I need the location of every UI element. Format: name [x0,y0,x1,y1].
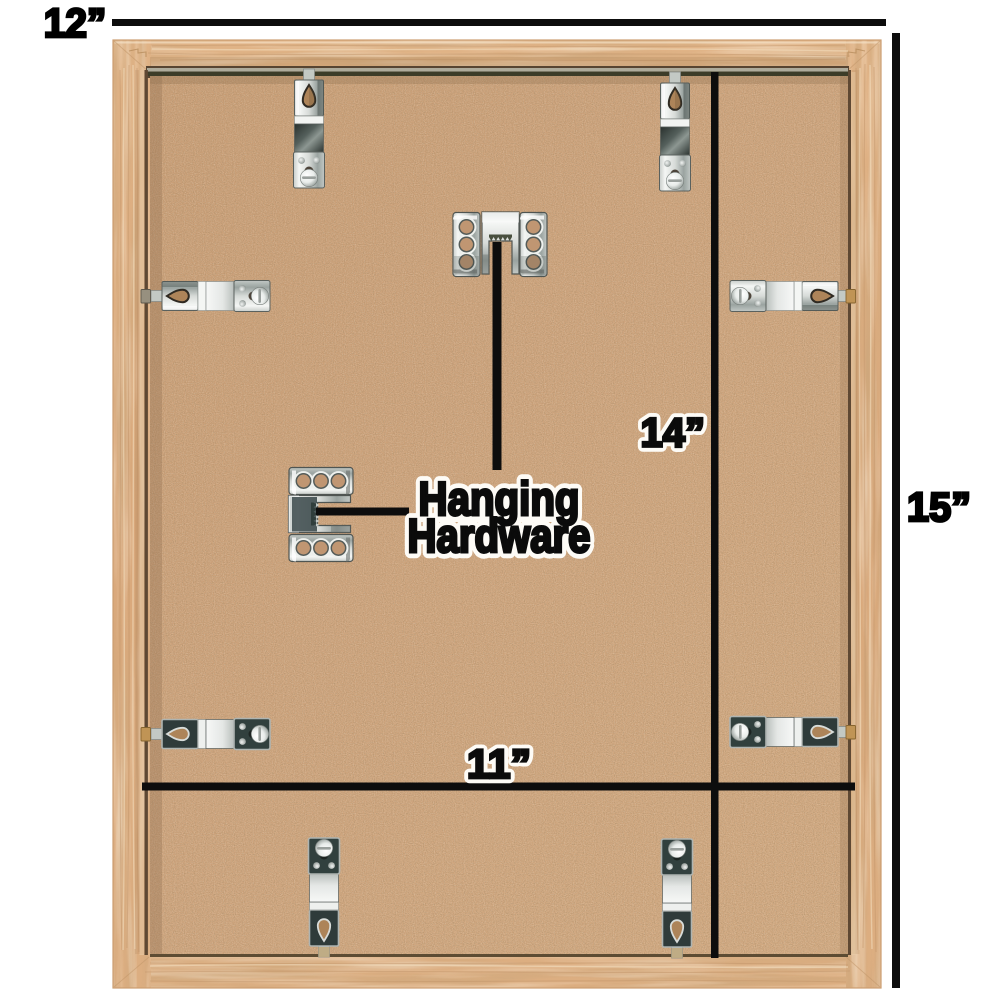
svg-text:15”: 15” [907,484,971,530]
svg-text:Hardware: Hardware [408,509,591,562]
svg-text:14”: 14” [641,410,706,456]
svg-text:11”: 11” [467,741,531,787]
svg-text:12”: 12” [44,0,107,46]
